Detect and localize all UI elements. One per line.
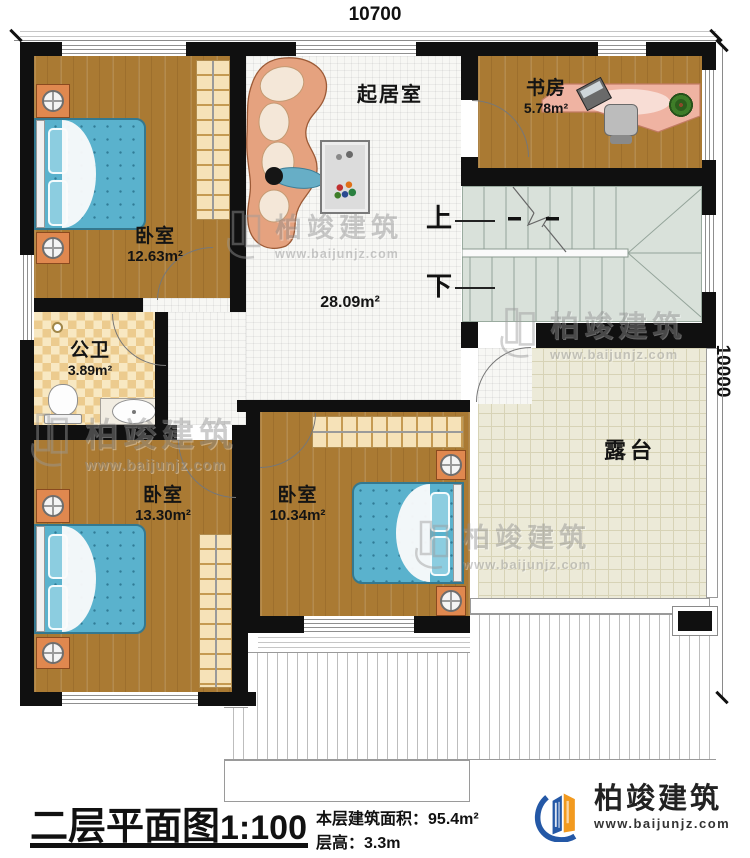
stairs-up-line [455,220,495,222]
bed-sheet-fold [62,120,96,228]
toilet [48,384,78,416]
wall [461,168,716,186]
wardrobe [199,534,232,688]
room-name: 起居室 [330,84,450,108]
floor-area-value: 95.4m² [428,811,479,828]
ceiling-lamp-icon [52,322,63,333]
lower-roof-railing-corner [224,707,248,760]
room-label-living: 起居室 [330,84,450,108]
wall [646,42,716,56]
bed-sheet-fold [62,526,96,632]
pillow [430,536,450,576]
wall [416,42,598,56]
wall [20,425,177,440]
hallway-floor-b [168,312,246,425]
nightstand [36,84,70,118]
room-area: 5.78m² [494,100,598,117]
wall [702,160,716,215]
sink [112,399,156,424]
window [62,692,198,706]
bed [34,524,146,634]
bed-sheet-fold [396,484,430,582]
lamp-icon [42,90,64,112]
bed [34,118,146,230]
room-name: 书房 [494,78,598,100]
pillow [430,492,450,532]
wall [246,616,304,633]
brand-logo-url: www.baijunjz.com [594,816,730,831]
room-label-terrace: 露台 [585,438,675,464]
wall [198,692,256,706]
wall [536,323,716,348]
floor-height-value: 3.3m [364,835,400,852]
table-decor-dot [346,151,353,158]
room-label-bathroom: 公卫 3.89m² [48,340,132,379]
wall [461,322,478,348]
nightstand [436,586,466,616]
wardrobe [312,416,464,448]
title-underline [30,843,308,848]
floor-area-line: 本层建筑面积：95.4m² [316,805,479,829]
lower-roof-railing-left [248,652,470,760]
nightstand [36,489,70,523]
office-chair [604,104,638,136]
floor-height-line: 层高：3.3m [316,829,400,853]
bed-headboard [36,526,45,632]
window [304,616,414,633]
wall [20,298,143,312]
wall [237,400,470,412]
top-eave-lines [20,27,716,40]
room-area-living: 28.09m² [300,294,400,313]
brand-logo: 柏竣建筑 www.baijunjz.com [534,784,730,842]
table-decor-dot [336,154,342,160]
window [20,255,34,340]
floor-plan: 卧室 12.63m² 起居室 28.09m² 书房 5.78m² 公卫 3.89… [0,0,750,858]
room-name: 公卫 [48,340,132,362]
room-name: 卧室 [110,226,200,248]
dimension-top-line [14,40,716,41]
room-area: 13.30m² [118,507,208,525]
nightstand [436,450,466,480]
wall [230,42,246,312]
lamp-icon [440,590,462,612]
room-label-bedroom-top-left: 卧室 12.63m² [110,226,200,266]
wall [414,616,470,633]
office-chair-base [610,135,632,144]
bed [352,482,464,584]
bed-headboard [453,484,462,582]
dimension-top: 10700 [320,4,430,26]
brand-logo-icon [534,784,586,842]
room-label-study: 书房 5.78m² [494,78,598,117]
stairs-down-line [455,287,495,289]
nightstand [36,637,70,669]
room-label-bedroom-bottom-left: 卧室 13.30m² [118,485,208,525]
room-name: 卧室 [118,485,208,507]
room-name: 卧室 [250,485,345,507]
room-name: 露台 [585,438,675,464]
lamp-icon [42,495,64,517]
stairs-up-label: 上 [426,198,452,235]
window [296,42,416,56]
plan-title: 二层平面图1:100 [30,795,307,850]
plant-icon [668,92,694,118]
floor-area-label: 本层建筑面积： [316,811,428,828]
lamp-icon [42,237,64,259]
bed-headboard [36,120,45,228]
terrace-corner-column-core [678,611,712,631]
wall [20,42,34,255]
floor-height-label: 层高： [316,835,364,852]
plan-title-text: 二层平面图 [30,806,220,848]
window [702,70,716,160]
wardrobe [196,60,230,220]
room-area: 12.63m² [110,248,200,266]
bedroom-bottom-middle-sill [258,633,470,652]
wall [20,340,34,706]
brand-logo-text: 柏竣建筑 [594,784,730,816]
window [702,215,716,292]
stairs-down-label: 下 [426,266,452,303]
room-area: 3.89m² [48,362,132,379]
flower-vase [332,178,358,202]
coffee-table [320,140,370,214]
wall [702,56,716,70]
lamp-icon [440,454,462,476]
window [62,42,186,56]
toilet-tank [44,414,82,424]
plan-scale: 1:100 [220,809,307,847]
window [598,42,646,56]
stairs-treads [462,186,702,322]
wall [461,157,478,168]
room-area: 28.09m² [300,294,400,313]
room-label-bedroom-bottom-middle: 卧室 10.34m² [250,485,345,525]
lamp-icon [42,642,64,664]
wall [461,56,478,100]
dimension-right-line [722,46,723,700]
room-area: 10.34m² [250,507,345,525]
nightstand [36,232,70,264]
